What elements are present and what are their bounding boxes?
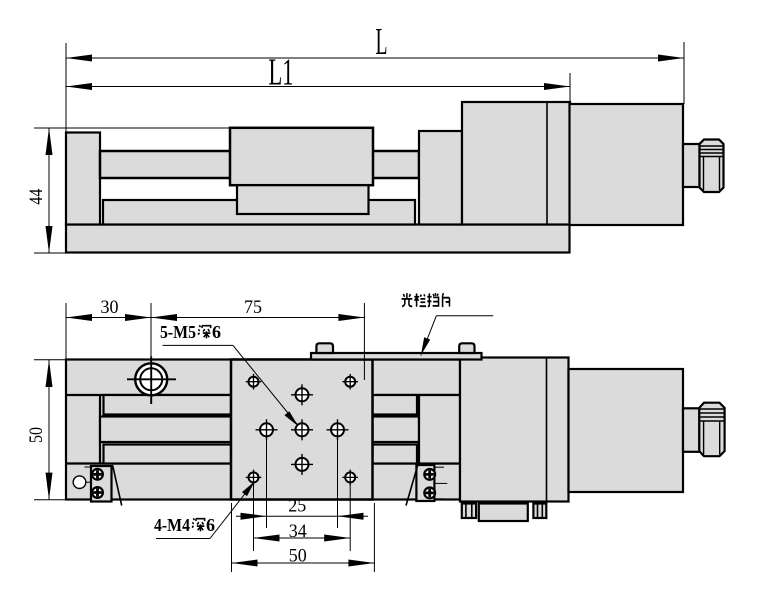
svg-text:44: 44 [26,188,47,204]
svg-text:30: 30 [101,297,119,318]
svg-text:L: L [376,21,388,63]
svg-text:6: 6 [212,322,221,342]
svg-text:5-M5: 5-M5 [160,322,196,342]
svg-text:6: 6 [206,515,215,535]
svg-text:4-M4: 4-M4 [154,515,190,535]
svg-text:34: 34 [289,521,307,542]
svg-text:50: 50 [289,545,307,566]
svg-text:50: 50 [26,427,47,443]
svg-text:75: 75 [244,297,262,318]
svg-text:25: 25 [288,496,306,517]
svg-text:L1: L1 [269,52,294,94]
